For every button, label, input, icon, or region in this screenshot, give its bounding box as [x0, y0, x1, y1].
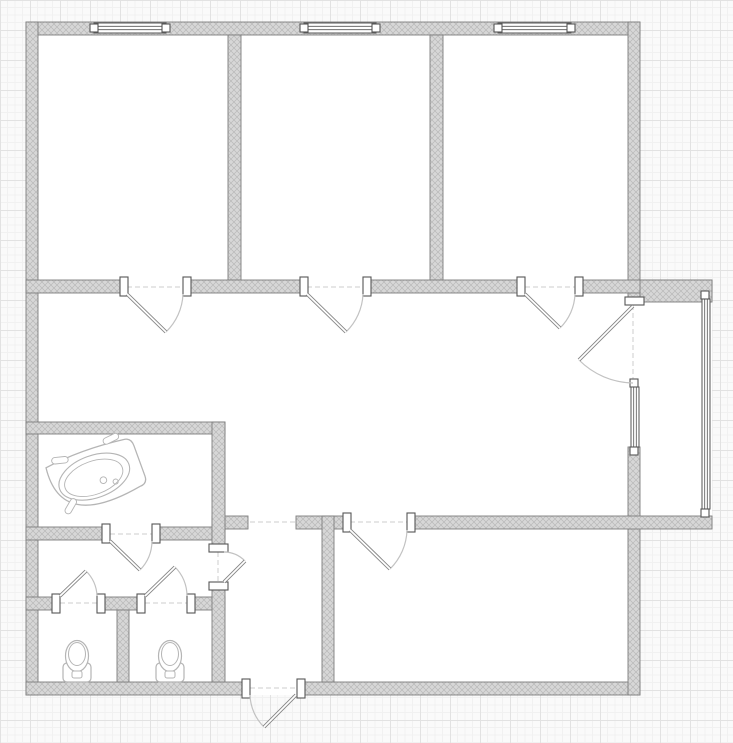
door-jamb: [363, 277, 371, 296]
wall-segment[interactable]: [212, 590, 225, 682]
wall-segment[interactable]: [105, 597, 137, 610]
wall-segment[interactable]: [370, 280, 518, 293]
window-end-marker: [701, 291, 709, 299]
door-jamb: [52, 594, 60, 613]
door-jamb: [137, 594, 145, 613]
door-jamb: [297, 679, 305, 698]
window-end-marker: [494, 24, 502, 32]
toilet-flush: [72, 671, 82, 678]
wall-segment[interactable]: [228, 35, 241, 280]
toilet-flush: [165, 671, 175, 678]
window-end-marker: [300, 24, 308, 32]
wall-segment[interactable]: [26, 280, 120, 293]
window-frame: [304, 23, 376, 33]
wall-segment[interactable]: [628, 22, 640, 305]
door-jamb: [209, 544, 228, 552]
window[interactable]: [304, 23, 376, 33]
window[interactable]: [702, 299, 710, 509]
door-jamb: [517, 277, 525, 296]
window-frame: [94, 23, 166, 33]
window-frame: [498, 23, 571, 33]
window-frame: [631, 387, 639, 447]
door-jamb: [407, 513, 415, 532]
door-jamb: [300, 277, 308, 296]
window-end-marker: [90, 24, 98, 32]
floor-area: [628, 280, 712, 529]
window[interactable]: [498, 23, 571, 33]
wall-segment[interactable]: [296, 516, 343, 529]
door-jamb: [97, 594, 105, 613]
door-jamb: [209, 582, 228, 590]
wall-segment[interactable]: [305, 682, 640, 695]
floorplan-canvas: [0, 0, 733, 743]
wall-segment[interactable]: [26, 22, 38, 695]
window[interactable]: [94, 23, 166, 33]
wall-segment[interactable]: [190, 280, 300, 293]
wall-segment[interactable]: [212, 422, 225, 546]
wall-segment[interactable]: [322, 516, 334, 682]
wall-segment[interactable]: [26, 597, 52, 610]
door-jamb: [625, 297, 644, 305]
toilet[interactable]: [156, 641, 184, 683]
door-jamb: [102, 524, 110, 543]
bathtub-grip: [51, 456, 68, 464]
window-end-marker: [162, 24, 170, 32]
window-end-marker: [630, 447, 638, 455]
wall-segment[interactable]: [414, 516, 712, 529]
wall-segment[interactable]: [26, 527, 102, 540]
wall-segment[interactable]: [430, 35, 443, 280]
window-end-marker: [701, 509, 709, 517]
window-end-marker: [567, 24, 575, 32]
window-end-marker: [372, 24, 380, 32]
door-jamb: [183, 277, 191, 296]
wall-segment[interactable]: [26, 682, 242, 695]
toilet[interactable]: [63, 641, 91, 683]
door-jamb: [575, 277, 583, 296]
wall-segment[interactable]: [628, 447, 640, 695]
door-jamb: [187, 594, 195, 613]
wall-segment[interactable]: [26, 422, 225, 434]
window-frame: [702, 299, 710, 509]
door-jamb: [152, 524, 160, 543]
door-jamb: [343, 513, 351, 532]
door-jamb: [120, 277, 128, 296]
door-jamb: [242, 679, 250, 698]
floorplan-page: [0, 0, 733, 743]
window[interactable]: [631, 387, 639, 447]
wall-segment[interactable]: [117, 610, 129, 682]
